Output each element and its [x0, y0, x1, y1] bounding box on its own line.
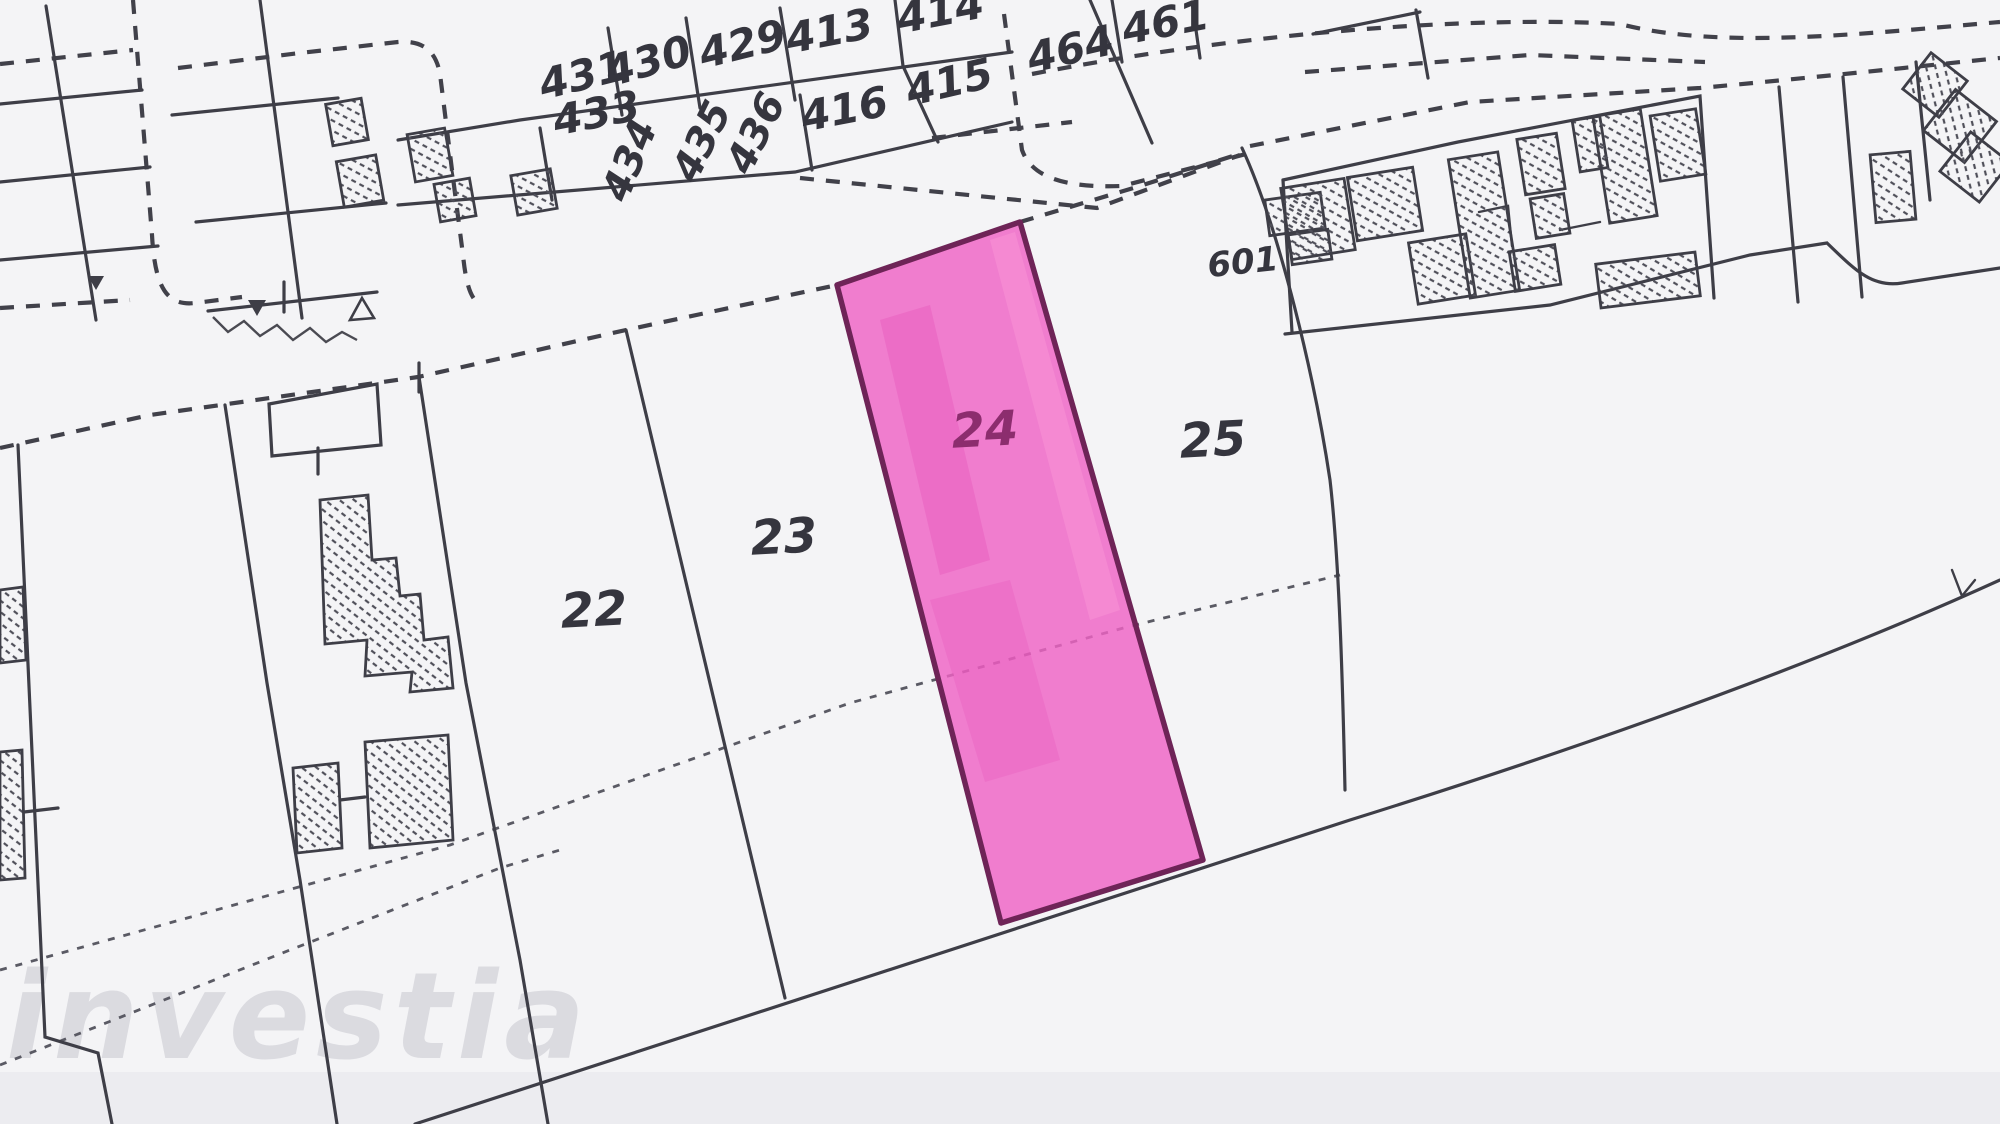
small-building [511, 169, 557, 215]
building-lower-left [293, 763, 342, 853]
building [1870, 151, 1916, 222]
building [1509, 245, 1561, 292]
parcel-label-22: 22 [559, 580, 629, 639]
small-building [326, 98, 369, 146]
small-building [336, 155, 383, 207]
building-left-edge-b [0, 750, 25, 880]
building-left-edge-a [0, 587, 26, 663]
watermark-text: investia [6, 948, 591, 1087]
building [1281, 178, 1355, 259]
cadastral-map-scan: investia [0, 0, 2000, 1124]
small-building [434, 178, 476, 222]
small-building [407, 128, 453, 182]
map-canvas: investia [0, 0, 2000, 1124]
parcel-label-25: 25 [1178, 410, 1248, 469]
building [1530, 194, 1570, 239]
parcel-label-601: 601 [1205, 239, 1280, 286]
building [1347, 167, 1422, 241]
building [1517, 133, 1565, 195]
parcel-label-24: 24 [950, 400, 1020, 459]
parcel-label-23: 23 [749, 507, 819, 566]
building-lower-right [365, 735, 453, 848]
building [1650, 109, 1706, 181]
